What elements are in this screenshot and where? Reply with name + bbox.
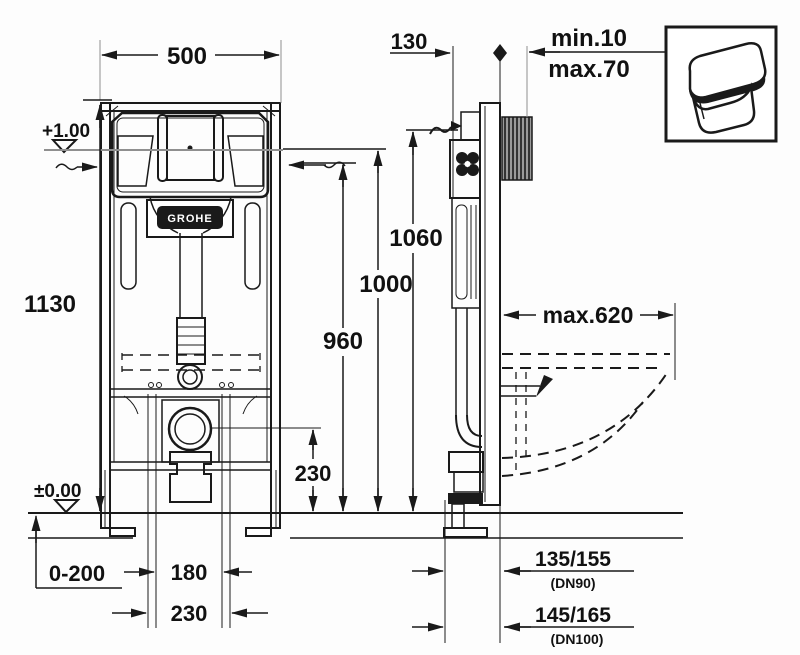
drain-dn90-label: (DN90): [550, 575, 595, 591]
outlet-outer-width-label: 230: [171, 601, 208, 626]
frame-mid-crossbar: [110, 389, 271, 397]
service-opening-dashed: [122, 353, 260, 372]
frame-width-label: 500: [167, 43, 207, 70]
right-foot-plate: [246, 528, 271, 536]
drain-socket-inner: [175, 414, 205, 444]
side-flush-valve: [456, 152, 479, 176]
wall-reference-diamond: [493, 44, 507, 62]
cistern-right-insert: [228, 136, 263, 186]
water-supply-valve: [430, 121, 462, 134]
dim-frame-width: 500: [100, 40, 281, 103]
frame-right-rail: [271, 103, 280, 528]
dim-outlet-width: 180: [124, 560, 252, 585]
top-height-label: 1000: [359, 271, 412, 298]
cistern-top-height-label: 960: [323, 328, 363, 355]
frame-left-rail: [101, 103, 110, 528]
side-top-bracket: [461, 112, 480, 140]
dim-supply-height: 1060: [389, 130, 458, 511]
wall-min-label: min.10: [551, 25, 627, 52]
drain-dn100-label: (DN100): [551, 631, 604, 647]
supply-height-label: 1060: [389, 225, 442, 252]
frame-depth-label: 130: [391, 29, 428, 54]
flush-pipe-ribbed: [177, 318, 205, 364]
water-inlet-arrow-left: [56, 164, 97, 169]
dim-bowl-projection: max.620: [504, 302, 673, 328]
brand-logo-label: GROHE: [167, 213, 212, 225]
bowl-projection-label: max.620: [543, 302, 634, 328]
drain-center-height-label: 230: [295, 461, 332, 486]
dim-frame-depth: 130: [390, 29, 450, 54]
drain-elbow: [170, 452, 211, 502]
finished-wall-hatch: [502, 117, 532, 180]
level-plus-label: +1.00: [42, 121, 90, 142]
drain-dn90-offset-label: 135/155: [535, 548, 611, 571]
toilet-bowl-dashed-outline: [502, 354, 670, 476]
dim-frame-height: 1130: [24, 100, 112, 511]
wall-hung-toilet-icon: [666, 27, 776, 141]
front-view-frame: GROHE: [101, 103, 280, 628]
leg-adjust-label: 0-200: [49, 561, 105, 586]
actuator-right-bar: [214, 115, 223, 181]
cistern-left-insert: [118, 136, 153, 186]
dim-cistern-top-height: 960: [300, 163, 363, 511]
side-drain-clamp: [448, 493, 483, 504]
wall-max-label: max.70: [548, 56, 629, 83]
level-zero-label: ±0.00: [34, 481, 81, 502]
dim-outlet-outer-width: 230: [112, 601, 268, 626]
installation-drawing: GROHE: [0, 0, 800, 655]
pipe-clamp: [178, 365, 202, 389]
level-marker-zero: ±0.00: [34, 481, 81, 512]
side-flush-bend: [456, 415, 482, 447]
frame-top-crossbar: [101, 103, 280, 111]
cistern-outline: [112, 113, 268, 197]
frame-lower-crossbar: [110, 462, 271, 470]
actuator-left-bar: [158, 115, 167, 181]
frame-height-label: 1130: [24, 291, 76, 318]
side-rail: [480, 103, 500, 505]
outlet-width-label: 180: [171, 560, 208, 585]
drain-dn100-offset-label: 145/165: [535, 604, 611, 627]
left-foot-plate: [110, 528, 135, 536]
side-foot-plate: [444, 528, 487, 537]
